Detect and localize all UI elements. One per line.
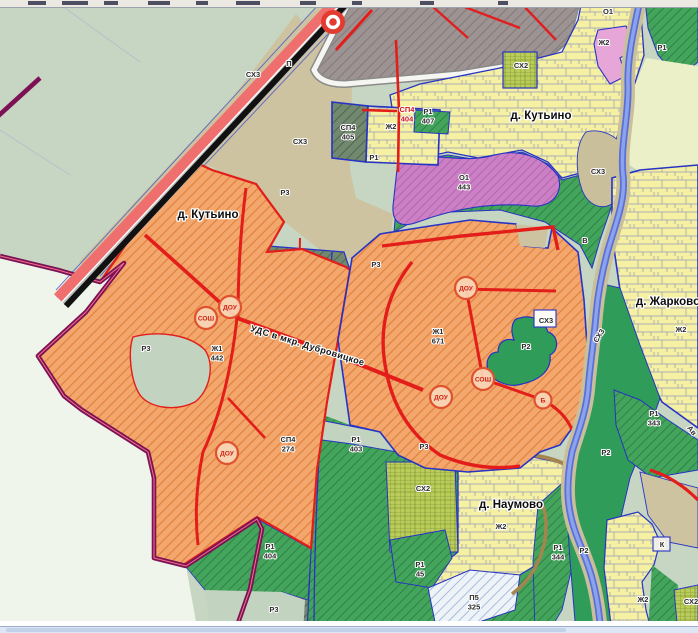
zone-label-ж1-17: Ж1442 — [211, 344, 224, 363]
facility-badge-доу-0: ДОУ — [219, 296, 241, 318]
zone-label-ж2-23: Ж2 — [675, 325, 687, 334]
zone-label-сх3-20: СХ3 — [539, 316, 553, 325]
zone-label-р2-32: Р2 — [601, 448, 610, 457]
zone-label-р2-34: Р2 — [579, 546, 588, 555]
zone-label-р3-19: Р3 — [141, 344, 150, 353]
toolbar-glyph — [236, 1, 260, 5]
zone-label-о1-4: О1 — [603, 8, 613, 16]
zone-label-р1-25: Р1403 — [350, 435, 363, 454]
scrollbar-thumb[interactable] — [6, 628, 566, 632]
toolbar-glyph — [28, 1, 46, 5]
zone-label-ж2-5: Ж2 — [598, 38, 610, 47]
zone-label-сх3-13: СХ3 — [591, 167, 605, 176]
toolbar-glyph — [300, 1, 316, 5]
facility-badge-сош-5: СОШ — [472, 368, 494, 390]
zone-label-р1-31: Р145 — [415, 560, 424, 579]
horizontal-scrollbar[interactable] — [0, 626, 698, 633]
facility-badge-доу-3: ДОУ — [455, 277, 477, 299]
zone-label-ж2-36: Ж2 — [637, 595, 649, 604]
toolbar-glyph — [196, 1, 208, 5]
zone-label-сп4-24: СП4274 — [281, 435, 297, 454]
settlement-label-1: д. Кутьино — [511, 110, 572, 122]
zone-label-сх3-0: СХ3 — [246, 70, 260, 79]
map-viewport[interactable]: СХ3ПСХ3СХ2О1Ж2Р1СП4405Ж2СП4404Р1407Р1О14… — [0, 8, 698, 627]
zone-label-ж1-18: Ж1671 — [432, 327, 445, 346]
zone-label-р3-39: Р3 — [269, 605, 278, 614]
zone-label-сх2-3: СХ2 — [514, 61, 528, 70]
facility-badge-б-6: Б — [535, 392, 552, 409]
zone-label-к-38: К — [660, 540, 665, 549]
zone-label-п5-35: П5325 — [468, 593, 481, 612]
facility-badge-label: ДОУ — [459, 285, 474, 292]
zone-label-р1-28: Р1343 — [648, 409, 661, 428]
station-icon — [321, 10, 345, 34]
zone-label-сх3-2: СХ3 — [293, 137, 307, 146]
zone-label-п-1: П — [286, 59, 291, 68]
toolbar-glyph — [498, 1, 508, 5]
facility-badge-label: ДОУ — [434, 394, 449, 401]
zone-label-сп4-7: СП4405 — [341, 123, 357, 142]
toolbar-glyph — [148, 1, 170, 5]
toolbar-glyph — [62, 1, 88, 5]
facility-badge-label: Б — [541, 397, 546, 404]
zone-label-р3-26: Р3 — [419, 442, 428, 451]
toolbar-remnant-strip — [0, 0, 698, 8]
zone-label-в-16: В — [582, 236, 588, 245]
toolbar-glyph — [104, 1, 118, 5]
zone-label-о1-12: О1443 — [458, 173, 471, 192]
facility-badge-label: СОШ — [475, 376, 492, 383]
settlement-label-0: д. Кутьино — [178, 209, 239, 221]
zone-label-ж2-30: Ж2 — [495, 522, 507, 531]
zone-label-сх2-37: СХ2 — [684, 597, 698, 606]
facility-badge-доу-4: ДОУ — [430, 386, 452, 408]
facility-badge-сош-1: СОШ — [195, 307, 217, 329]
zone-label-сп4-9: СП4404 — [400, 105, 416, 124]
zone-label-сх2-29: СХ2 — [416, 484, 430, 493]
map-canvas[interactable]: СХ3ПСХ3СХ2О1Ж2Р1СП4405Ж2СП4404Р1407Р1О14… — [0, 8, 698, 621]
settlement-label-3: д. Жарково — [636, 296, 698, 308]
gis-application-window: СХ3ПСХ3СХ2О1Ж2Р1СП4405Ж2СП4404Р1407Р1О14… — [0, 0, 698, 633]
zone-label-р1-11: Р1 — [369, 153, 378, 162]
zone-label-р3-14: Р3 — [280, 188, 289, 197]
zone-label-р2-22: Р2 — [521, 342, 530, 351]
facility-badge-label: ДОУ — [223, 304, 238, 311]
zone-label-р1-10: Р1407 — [422, 107, 435, 126]
toolbar-glyph — [420, 1, 434, 5]
zone-label-р3-15: Р3 — [371, 260, 380, 269]
facility-badge-доу-2: ДОУ — [216, 442, 238, 464]
facility-badge-label: СОШ — [198, 315, 215, 322]
zone-label-ж2-8: Ж2 — [385, 122, 397, 131]
toolbar-glyph — [352, 1, 362, 5]
zone-cx2-box — [503, 52, 537, 88]
facility-badge-label: ДОУ — [220, 450, 235, 457]
zone-label-р1-6: Р1 — [657, 43, 666, 52]
settlement-label-2: д. Наумово — [479, 499, 543, 511]
